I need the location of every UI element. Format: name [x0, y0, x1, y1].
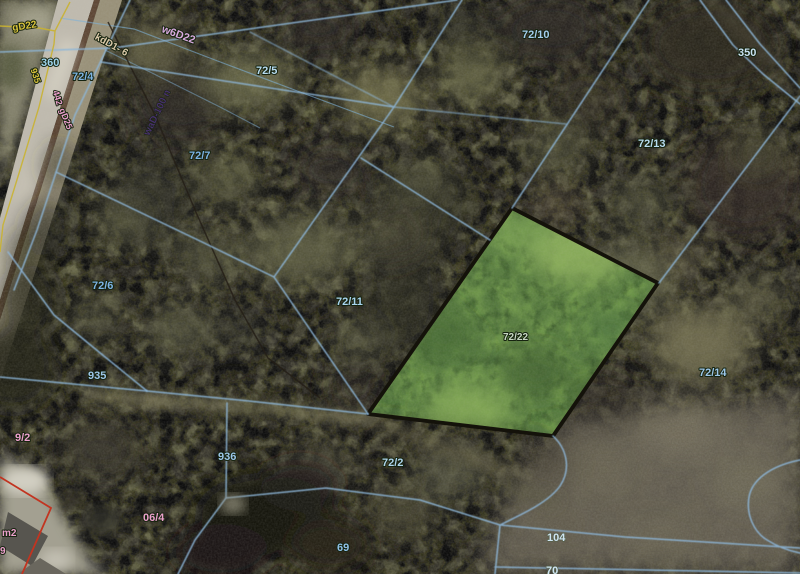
svg-text:69: 69 [337, 542, 349, 554]
svg-text:m2: m2 [2, 528, 17, 539]
svg-text:360: 360 [41, 57, 59, 69]
svg-text:72/13: 72/13 [638, 138, 666, 150]
svg-text:72/10: 72/10 [522, 29, 550, 41]
svg-text:70: 70 [546, 565, 558, 574]
svg-text:935: 935 [88, 370, 106, 382]
svg-text:72/2: 72/2 [382, 457, 403, 469]
svg-text:72/4: 72/4 [72, 71, 94, 83]
svg-text:9: 9 [0, 546, 6, 557]
svg-text:104: 104 [547, 532, 566, 544]
svg-text:72/14: 72/14 [699, 367, 727, 379]
svg-text:72/6: 72/6 [92, 280, 113, 292]
svg-text:72/5: 72/5 [256, 65, 277, 77]
svg-text:72/22: 72/22 [503, 332, 528, 343]
svg-text:72/7: 72/7 [189, 150, 210, 162]
svg-text:9/2: 9/2 [15, 432, 30, 444]
svg-text:936: 936 [218, 451, 236, 463]
svg-text:06/4: 06/4 [143, 512, 165, 524]
svg-text:72/11: 72/11 [336, 296, 363, 308]
svg-text:350: 350 [738, 47, 756, 59]
